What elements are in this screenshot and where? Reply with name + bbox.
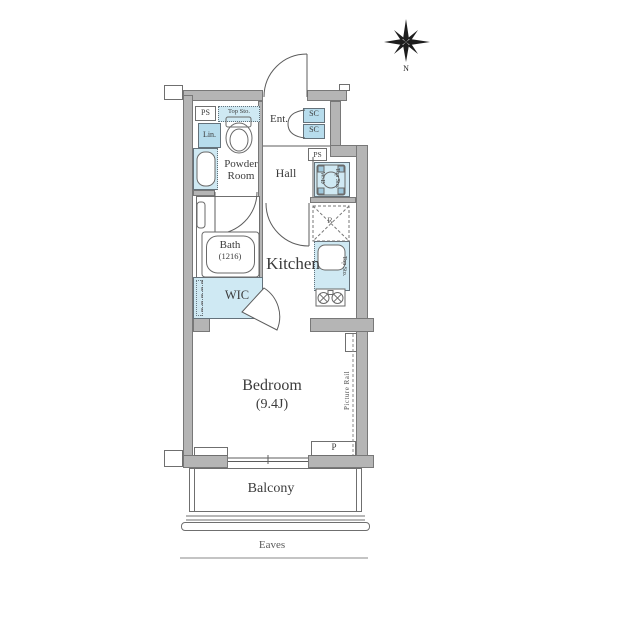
label-top-storage-laundry: Top Sto. [334, 168, 340, 188]
bath-door-swing [215, 192, 257, 234]
label-bedroom: Bedroom (9.4J) [227, 378, 317, 412]
floor-plan: N PS Top Sto. Lin. Powder Room Ent. SC S… [0, 0, 640, 639]
label-washer-dryer: W/D [319, 172, 325, 184]
label-shoe-cabinet-upper: SC [303, 110, 325, 118]
label-bath: Bath (1216) [204, 240, 256, 260]
label-ps-top: PS [195, 109, 216, 117]
label-pipe: P [324, 443, 344, 452]
bedroom-window [228, 455, 308, 464]
compass-north-label: N [403, 64, 409, 73]
label-kitchen: Kitchen [257, 255, 329, 273]
label-bedroom-name: Bedroom [227, 378, 317, 395]
label-bath-name: Bath [204, 240, 256, 252]
kitchen-door-swing [266, 203, 309, 246]
label-top-storage-kitchen: Top Sto. [341, 256, 347, 276]
label-linen: Lin. [198, 131, 221, 139]
label-ps-right: PS [308, 151, 327, 159]
label-eaves: Eaves [237, 540, 307, 552]
label-powder-room: Powder Room [217, 159, 265, 182]
compass-rose [384, 19, 430, 62]
balcony-railing [186, 516, 365, 520]
label-refrigerator: R [320, 217, 340, 225]
label-bath-size: (1216) [204, 252, 256, 261]
label-entrance: Ent. [263, 114, 295, 126]
label-bedroom-size: (9.4J) [227, 398, 317, 413]
toilet-icon [226, 117, 252, 153]
powder-sink-icon [197, 152, 215, 186]
stove-icon [316, 289, 345, 306]
label-picture-rail: Picture Rail [343, 371, 351, 410]
label-top-storage-toilet: Top Sto. [218, 109, 260, 116]
plan-linework: N [0, 0, 640, 639]
label-wic: WIC [213, 289, 261, 302]
entrance-door-swing [264, 54, 307, 97]
label-shoe-cabinet-lower: SC [303, 126, 325, 134]
label-hall: Hall [266, 167, 306, 180]
label-balcony: Balcony [231, 482, 311, 497]
